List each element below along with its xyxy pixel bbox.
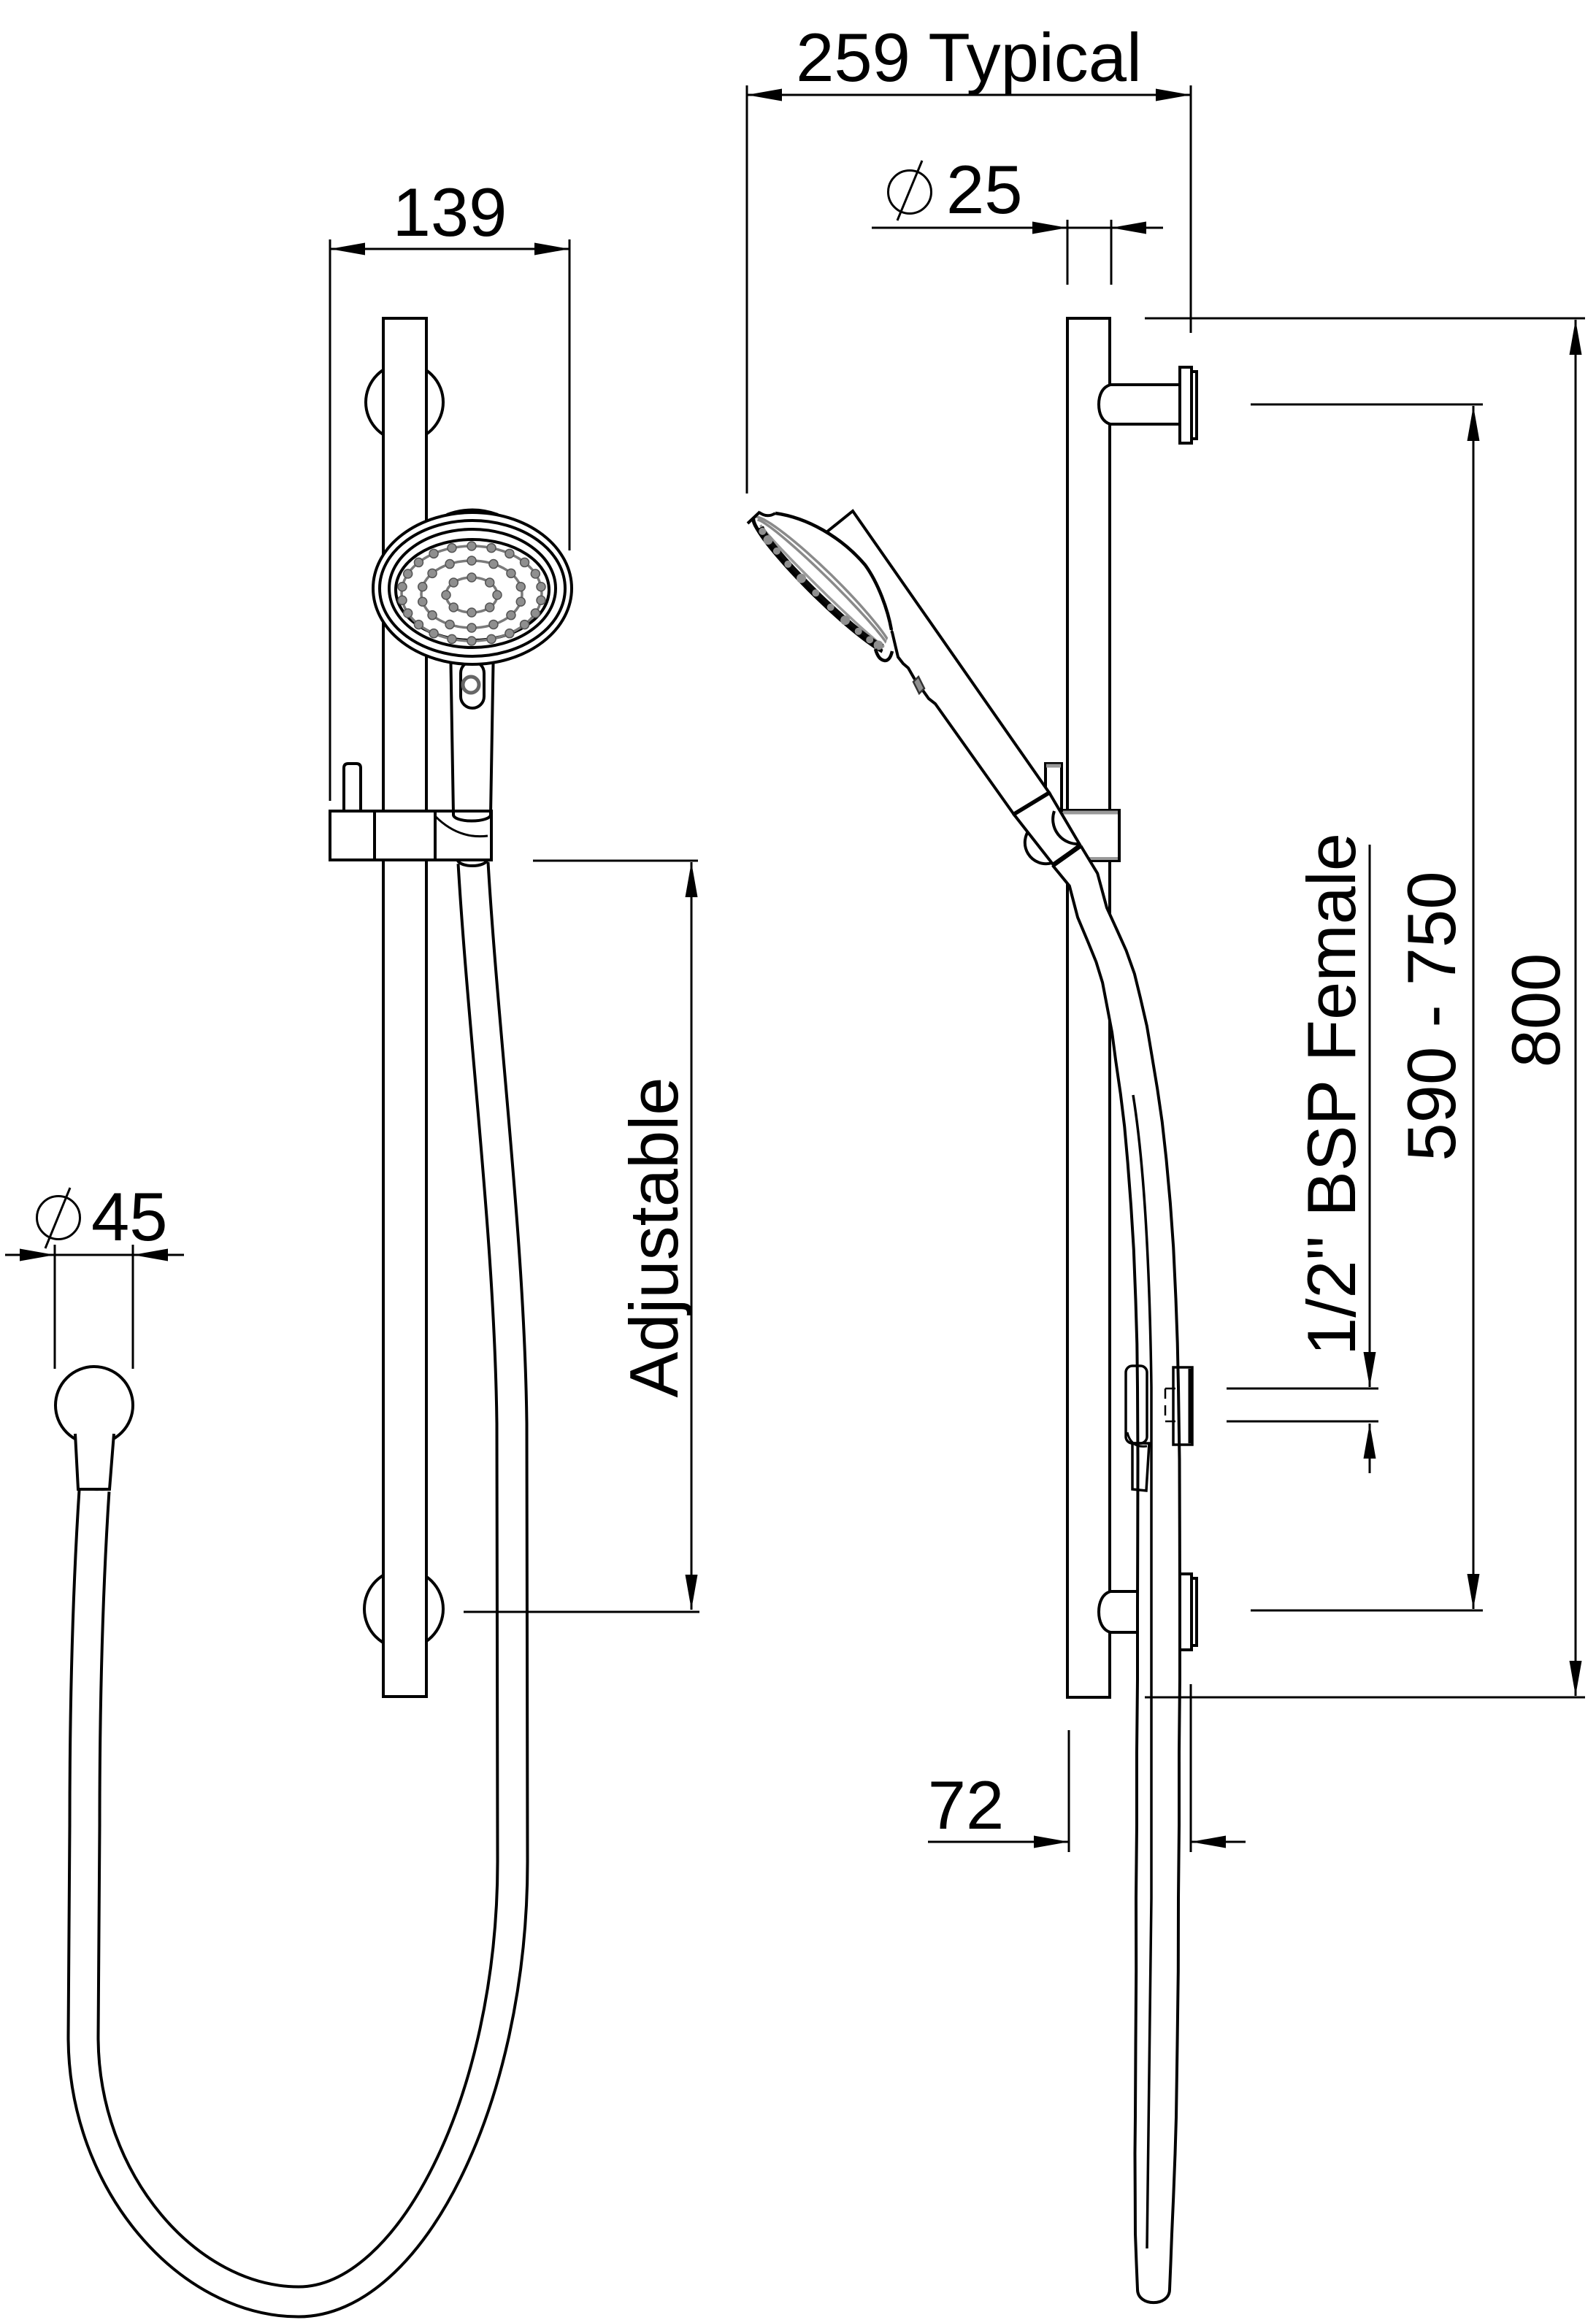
svg-text:Adjustable: Adjustable bbox=[615, 1078, 692, 1398]
svg-text:25: 25 bbox=[946, 151, 1023, 228]
svg-text:800: 800 bbox=[1497, 953, 1574, 1068]
svg-text:259 Typical: 259 Typical bbox=[796, 19, 1142, 96]
svg-text:1/2" BSP Female: 1/2" BSP Female bbox=[1293, 833, 1370, 1356]
svg-text:45: 45 bbox=[91, 1178, 168, 1255]
svg-text:72: 72 bbox=[928, 1767, 1005, 1843]
svg-text:590 - 750: 590 - 750 bbox=[1393, 871, 1470, 1161]
svg-text:139: 139 bbox=[393, 174, 507, 250]
